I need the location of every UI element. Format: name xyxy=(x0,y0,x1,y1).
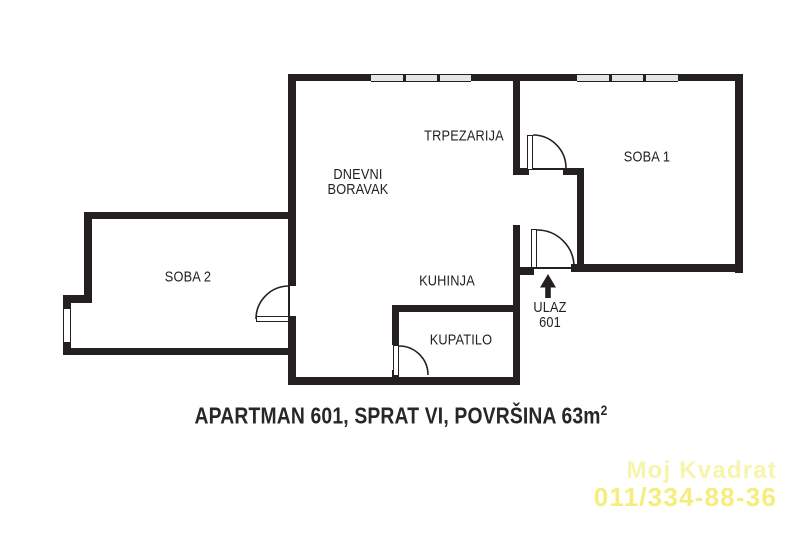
entrance-label-ulaz: ULAZ xyxy=(533,300,566,315)
wall-soba2-top xyxy=(84,212,296,219)
wall-kupatilo-top xyxy=(392,305,517,312)
wall-left-upper xyxy=(288,74,296,286)
window-soba1 xyxy=(577,74,678,82)
threshold-entrance-door xyxy=(534,267,573,269)
window-pane-divider xyxy=(643,75,646,81)
threshold-soba1-door xyxy=(529,168,563,170)
floor-plan: TRPEZARIJA DNEVNI BORAVAK SOBA 1 SOBA 2 … xyxy=(0,0,800,533)
threshold-soba2-door xyxy=(288,285,290,317)
entrance-label-number: 601 xyxy=(533,315,566,330)
wall-right xyxy=(735,74,743,273)
watermark-brand: Moj Kvadrat xyxy=(594,459,777,484)
wall-bottom-main xyxy=(288,377,520,385)
door-arc-soba1 xyxy=(533,135,566,168)
window-living-room xyxy=(371,74,471,82)
room-label-dnevni-line1: DNEVNI xyxy=(328,167,389,182)
window-pane-divider xyxy=(403,75,406,81)
room-label-dnevni-boravak: DNEVNI BORAVAK xyxy=(328,167,389,197)
watermark-phone: 011/334-88-36 xyxy=(594,484,777,511)
plan-caption-superscript: 2 xyxy=(601,403,608,419)
door-leaf-entrance xyxy=(531,229,537,268)
entrance-arrow-icon xyxy=(540,274,556,298)
room-label-kuhinja: KUHINJA xyxy=(419,274,475,289)
door-arc-entrance xyxy=(537,230,574,267)
window-pane-divider xyxy=(609,75,612,81)
wall-corridor-right xyxy=(577,168,584,272)
door-arc-soba2 xyxy=(256,286,289,319)
wall-trpezarija-soba1-divider xyxy=(513,74,520,175)
plan-caption-text: APARTMAN 601, SPRAT VI, POVRŠINA 63m xyxy=(195,403,601,429)
window-pane-divider xyxy=(437,75,440,81)
watermark: Moj Kvadrat 011/334-88-36 xyxy=(594,459,777,511)
entrance-label: ULAZ 601 xyxy=(533,300,566,330)
room-label-trpezarija: TRPEZARIJA xyxy=(424,129,504,144)
room-label-soba1: SOBA 1 xyxy=(624,150,670,165)
wall-kupatilo-left xyxy=(392,305,399,345)
door-leaf-soba2 xyxy=(256,316,289,322)
room-label-dnevni-line2: BORAVAK xyxy=(328,182,389,197)
wall-soba2-bottom xyxy=(63,348,296,355)
door-leaf-soba1 xyxy=(527,135,533,170)
room-label-kupatilo: KUPATILO xyxy=(430,333,493,348)
room-label-soba2: SOBA 2 xyxy=(165,270,211,285)
wall-soba1-bottom xyxy=(571,264,743,272)
window-soba2 xyxy=(63,308,71,343)
wall-soba2-left-upper xyxy=(84,212,92,303)
door-leaf-kupatilo xyxy=(393,345,399,376)
plan-caption: APARTMAN 601, SPRAT VI, POVRŠINA 63m2 xyxy=(195,403,608,430)
door-arc-kupatilo xyxy=(399,346,428,375)
